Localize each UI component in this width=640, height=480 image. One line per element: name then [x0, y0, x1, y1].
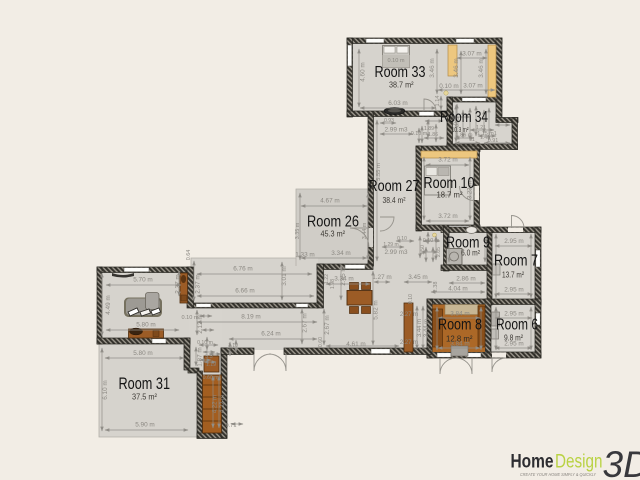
svg-text:2.99 m3: 2.99 m3 [384, 127, 408, 134]
svg-text:3.01 m: 3.01 m [281, 266, 288, 286]
svg-text:37.5 m²: 37.5 m² [132, 392, 157, 402]
svg-text:4.22 m: 4.22 m [220, 395, 226, 413]
svg-text:2.86 m: 2.86 m [456, 276, 476, 283]
svg-text:6.76 m: 6.76 m [233, 266, 253, 273]
svg-text:4.49 m: 4.49 m [105, 295, 112, 315]
svg-text:2.67 m: 2.67 m [302, 313, 309, 333]
svg-text:1.14: 1.14 [435, 96, 441, 107]
svg-text:3.72 m: 3.72 m [438, 213, 458, 220]
svg-text:2.37 m: 2.37 m [195, 274, 202, 294]
svg-text:3.45 m: 3.45 m [408, 274, 428, 281]
svg-text:0.10: 0.10 [408, 294, 414, 304]
svg-text:Home: Home [511, 452, 554, 473]
svg-text:10.3 m²: 10.3 m² [452, 125, 469, 134]
svg-text:5.80 m: 5.80 m [136, 322, 156, 329]
svg-text:2.27 m: 2.27 m [400, 340, 418, 346]
svg-text:4.22 m: 4.22 m [213, 395, 219, 413]
svg-text:1.10: 1.10 [228, 343, 238, 349]
svg-text:3.46 m: 3.46 m [429, 58, 436, 78]
svg-text:4.04 m: 4.04 m [448, 286, 468, 293]
svg-text:1.29 m: 1.29 m [383, 242, 398, 248]
svg-text:0.10 m: 0.10 m [197, 340, 213, 346]
svg-text:8.19 m: 8.19 m [241, 314, 261, 321]
svg-text:3.46 m: 3.46 m [478, 58, 485, 78]
svg-text:1.50: 1.50 [420, 245, 426, 255]
svg-text:3.34 m: 3.34 m [334, 276, 354, 283]
svg-text:3.07 m: 3.07 m [462, 51, 482, 58]
svg-text:6.10 m: 6.10 m [102, 380, 109, 400]
svg-text:2.38: 2.38 [433, 282, 439, 293]
svg-text:3.44 m: 3.44 m [362, 222, 368, 239]
svg-text:2.95 m: 2.95 m [504, 238, 524, 245]
svg-text:6.0 m²: 6.0 m² [461, 249, 480, 258]
svg-text:2.99 m3: 2.99 m3 [384, 249, 408, 256]
svg-text:12.8 m²: 12.8 m² [446, 334, 473, 344]
svg-text:5.70 m: 5.70 m [133, 277, 153, 284]
svg-text:6.24 m: 6.24 m [261, 331, 281, 338]
svg-text:2.67 m: 2.67 m [324, 315, 331, 335]
svg-text:Room 7: Room 7 [494, 253, 538, 270]
svg-text:Room 6: Room 6 [496, 317, 538, 334]
svg-text:0.64: 0.64 [186, 250, 192, 261]
svg-text:0.71: 0.71 [226, 423, 237, 429]
svg-text:13.7 m²: 13.7 m² [502, 270, 524, 280]
svg-text:0.60: 0.60 [318, 337, 324, 347]
svg-text:2.05: 2.05 [436, 247, 442, 257]
svg-text:1.40: 1.40 [480, 135, 490, 141]
svg-text:0.10 m: 0.10 m [423, 238, 440, 244]
svg-text:2.27 m: 2.27 m [400, 312, 418, 318]
svg-text:4.61 m: 4.61 m [346, 341, 366, 348]
svg-text:3.07 m: 3.07 m [463, 83, 483, 90]
svg-text:4.60 m: 4.60 m [360, 62, 367, 82]
svg-text:Room 33: Room 33 [375, 64, 426, 81]
svg-text:3.35 m: 3.35 m [295, 222, 301, 239]
svg-text:0.60 m1: 0.60 m1 [203, 375, 222, 381]
svg-text:0.10 m: 0.10 m [439, 83, 459, 90]
svg-text:1.33 m: 1.33 m [295, 252, 315, 259]
svg-text:6.66 m: 6.66 m [235, 288, 255, 295]
svg-text:5.82 m: 5.82 m [373, 300, 380, 320]
svg-text:0.10 m: 0.10 m [181, 315, 198, 321]
svg-text:3.46 m: 3.46 m [453, 58, 460, 78]
svg-text:3.34 m: 3.34 m [331, 250, 351, 257]
svg-text:1.86: 1.86 [428, 132, 438, 138]
svg-text:1.19: 1.19 [206, 362, 216, 368]
svg-text:Room 31: Room 31 [119, 375, 171, 393]
svg-text:38.7 m²: 38.7 m² [389, 80, 414, 90]
svg-text:18.7 m²: 18.7 m² [437, 190, 463, 200]
svg-text:3.44 m: 3.44 m [417, 319, 423, 337]
svg-text:4.67 m: 4.67 m [320, 198, 340, 205]
svg-text:3D: 3D [603, 444, 640, 480]
svg-text:45.3 m²: 45.3 m² [321, 229, 346, 239]
svg-text:6.03 m: 6.03 m [388, 100, 408, 107]
svg-text:2.95 m: 2.95 m [504, 287, 524, 294]
svg-text:0.93: 0.93 [384, 118, 394, 124]
svg-text:1.87 m: 1.87 m [197, 347, 204, 367]
svg-text:91: 91 [469, 137, 475, 143]
svg-text:38.4 m²: 38.4 m² [383, 195, 406, 205]
svg-text:2.37 m: 2.37 m [175, 274, 182, 294]
svg-text:Design: Design [555, 452, 603, 473]
svg-text:Room 27: Room 27 [369, 178, 420, 195]
svg-text:CREATE YOUR HOME SIMPLY & QUIC: CREATE YOUR HOME SIMPLY & QUICKLY [520, 472, 597, 478]
svg-text:3.44 m: 3.44 m [424, 319, 430, 337]
svg-text:9.8 m²: 9.8 m² [504, 333, 523, 343]
svg-text:1.27 m: 1.27 m [372, 274, 392, 281]
svg-text:5.80 m: 5.80 m [133, 350, 153, 357]
svg-text:3.72 m: 3.72 m [438, 157, 458, 164]
svg-text:5.5: 5.5 [205, 354, 212, 360]
svg-text:Room 8: Room 8 [438, 317, 482, 334]
svg-text:5.90 m: 5.90 m [135, 422, 155, 429]
svg-text:Room 34: Room 34 [440, 109, 488, 126]
